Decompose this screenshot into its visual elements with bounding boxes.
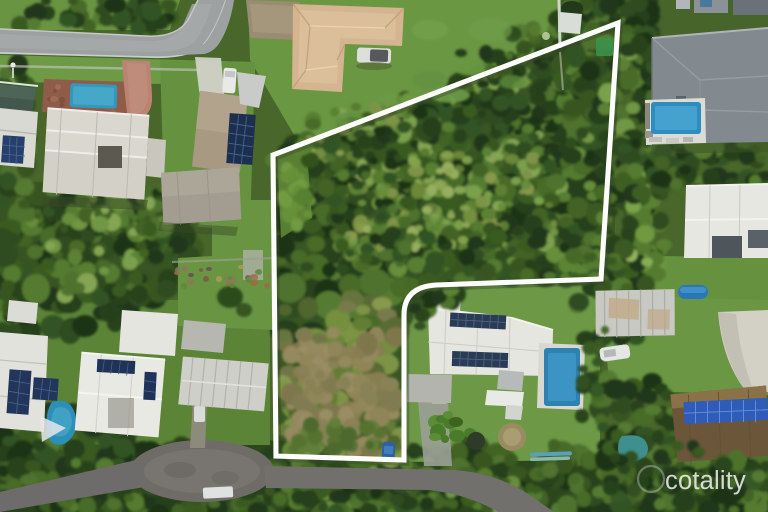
svg-text:cotality: cotality	[665, 467, 746, 495]
